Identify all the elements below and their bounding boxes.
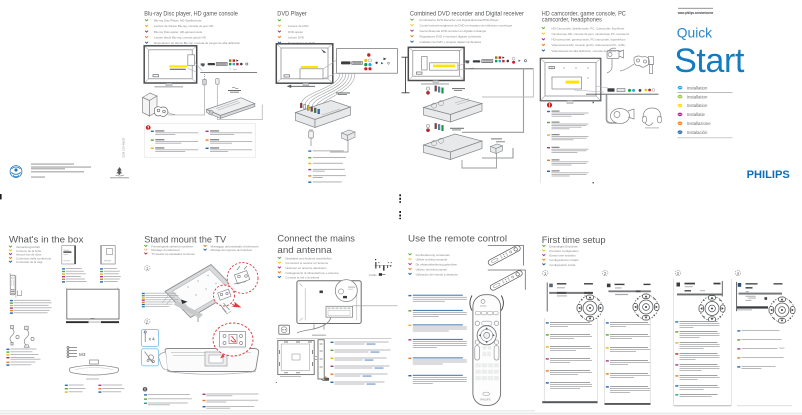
svg-text:x 4: x 4 <box>149 337 156 342</box>
svg-text:Contenido de la caja: Contenido de la caja <box>16 260 43 264</box>
svg-text:Italia: Italia <box>779 346 785 350</box>
svg-text:Première configuration: Première configuration <box>549 249 578 253</box>
svg-text:Registratore DVD e ricevitore: Registratore DVD e ricevitore digitale c… <box>420 35 482 39</box>
svg-text:Videocamera HD, console giochi: Videocamera HD, console giochi, videocam… <box>552 43 626 47</box>
svg-text:HD-camcorder, gameconsole, PC-: HD-camcorder, gameconsole, PC-camcorder,… <box>552 38 626 42</box>
svg-text:Configuración inicial: Configuración inicial <box>549 263 575 267</box>
svg-text:3139 125 40625: 3139 125 40625 <box>122 137 126 158</box>
svg-text:Gecombineerde DVD-recorder en: Gecombineerde DVD-recorder en digitale o… <box>420 29 487 33</box>
svg-text:Caméscope HD, console de jeux,: Caméscope HD, console de jeux, caméscope… <box>552 32 630 36</box>
svg-text:HD-Camcorder, Spielkonsole, PC: HD-Camcorder, Spielkonsole, PC, Camcorde… <box>552 26 625 30</box>
svg-text:Kombinierter DVD-Recorder und: Kombinierter DVD-Recorder und Digital-Re… <box>420 18 499 22</box>
svg-text:Instalación: Instalación <box>687 130 708 135</box>
svg-text:Blu-ray Disc Player, HD-Spielk: Blu-ray Disc Player, HD-Spielkonsole <box>154 19 202 23</box>
svg-text:Lettore dischi Blu-ray, consol: Lettore dischi Blu-ray, console giochi H… <box>154 35 206 39</box>
svg-text:Cable: Cable <box>369 273 377 277</box>
svg-text:Fernbedienung verwenden: Fernbedienung verwenden <box>416 253 451 257</box>
svg-text:Stand mount the TV: Stand mount the TV <box>144 234 227 245</box>
svg-text:Combined DVD recorder and Digi: Combined DVD recorder and Digital receiv… <box>410 11 525 18</box>
svg-text:Configurazione iniziale: Configurazione iniziale <box>549 258 578 262</box>
svg-text:Netzkabel und Antenne anschlie: Netzkabel und Antenne anschließen <box>285 256 332 260</box>
svg-text:Grabador de DVD y receptor dig: Grabador de DVD y receptor digital combi… <box>420 40 482 44</box>
svg-text:Installation: Installation <box>687 103 708 108</box>
svg-text:and antenna: and antenna <box>277 244 332 255</box>
svg-text:Installatie: Installatie <box>687 112 706 117</box>
svg-text:Eerste keer instellen: Eerste keer instellen <box>549 254 576 258</box>
svg-text:Installation: Installation <box>687 85 708 90</box>
svg-text:Start: Start <box>674 42 745 80</box>
svg-text:Lecteur de disque Blu-ray, con: Lecteur de disque Blu-ray, console de je… <box>154 24 213 28</box>
svg-text:What's in the box: What's in the box <box>9 234 84 245</box>
svg-text:M3: M3 <box>79 352 86 357</box>
svg-text:TV-toestel op standaard monter: TV-toestel op standaard monteren <box>151 252 195 256</box>
svg-text:Blu-ray Disc player, HD game c: Blu-ray Disc player, HD game console <box>144 11 238 18</box>
svg-text:DVD Player: DVD Player <box>277 11 307 18</box>
svg-text:De afstandsbediening gebruiken: De afstandsbediening gebruiken <box>416 263 458 267</box>
svg-text:Lecteur de DVD: Lecteur de DVD <box>288 24 309 28</box>
svg-text:www.philips.com/welcome: www.philips.com/welcome <box>677 11 713 15</box>
svg-text:Utilización del mando a distan: Utilización del mando a distancia <box>416 272 458 276</box>
svg-text:Erstmaliges Einrichten: Erstmaliges Einrichten <box>549 244 578 248</box>
svg-text:Utilizzo del telecomando: Utilizzo del telecomando <box>416 268 448 272</box>
svg-text:Montaje del soporte del televi: Montaje del soporte del televisor <box>211 248 253 252</box>
svg-text:DVD-speler: DVD-speler <box>288 30 303 34</box>
svg-text:Connectez le secteur et l'ante: Connectez le secteur et l'antenne <box>285 261 328 265</box>
svg-text:PHILIPS: PHILIPS <box>747 169 790 181</box>
svg-text:Reproductor de discos Blu-ray,: Reproductor de discos Blu-ray, consola d… <box>154 41 240 45</box>
svg-text:Lettore DVD: Lettore DVD <box>288 35 304 39</box>
svg-text:Conecte la red y la antena: Conecte la red y la antena <box>285 276 319 280</box>
svg-text:Installation: Installation <box>687 94 708 99</box>
svg-text:Installazione: Installazione <box>687 121 711 126</box>
svg-text:Quick: Quick <box>677 26 712 41</box>
svg-text:Utiliser la télécommande: Utiliser la télécommande <box>416 258 448 262</box>
svg-text:Collegamento di alimentazione: Collegamento di alimentazione e antenna <box>285 271 339 275</box>
svg-text:Blu-ray Disc-speler, HD-gameco: Blu-ray Disc-speler, HD-gameconsole <box>154 30 203 34</box>
svg-text:camcorder, headphones: camcorder, headphones <box>542 17 603 24</box>
svg-text:Use the remote control: Use the remote control <box>408 232 507 243</box>
svg-text:Combi lecteur/enregistreur de: Combi lecteur/enregistreur de DVD et réc… <box>420 24 513 28</box>
svg-text:Netsnoer en antenne aansluiten: Netsnoer en antenne aansluiten <box>285 266 326 270</box>
svg-text:PHILIPS: PHILIPS <box>481 398 491 402</box>
svg-text:Connect the mains: Connect the mains <box>277 232 355 243</box>
